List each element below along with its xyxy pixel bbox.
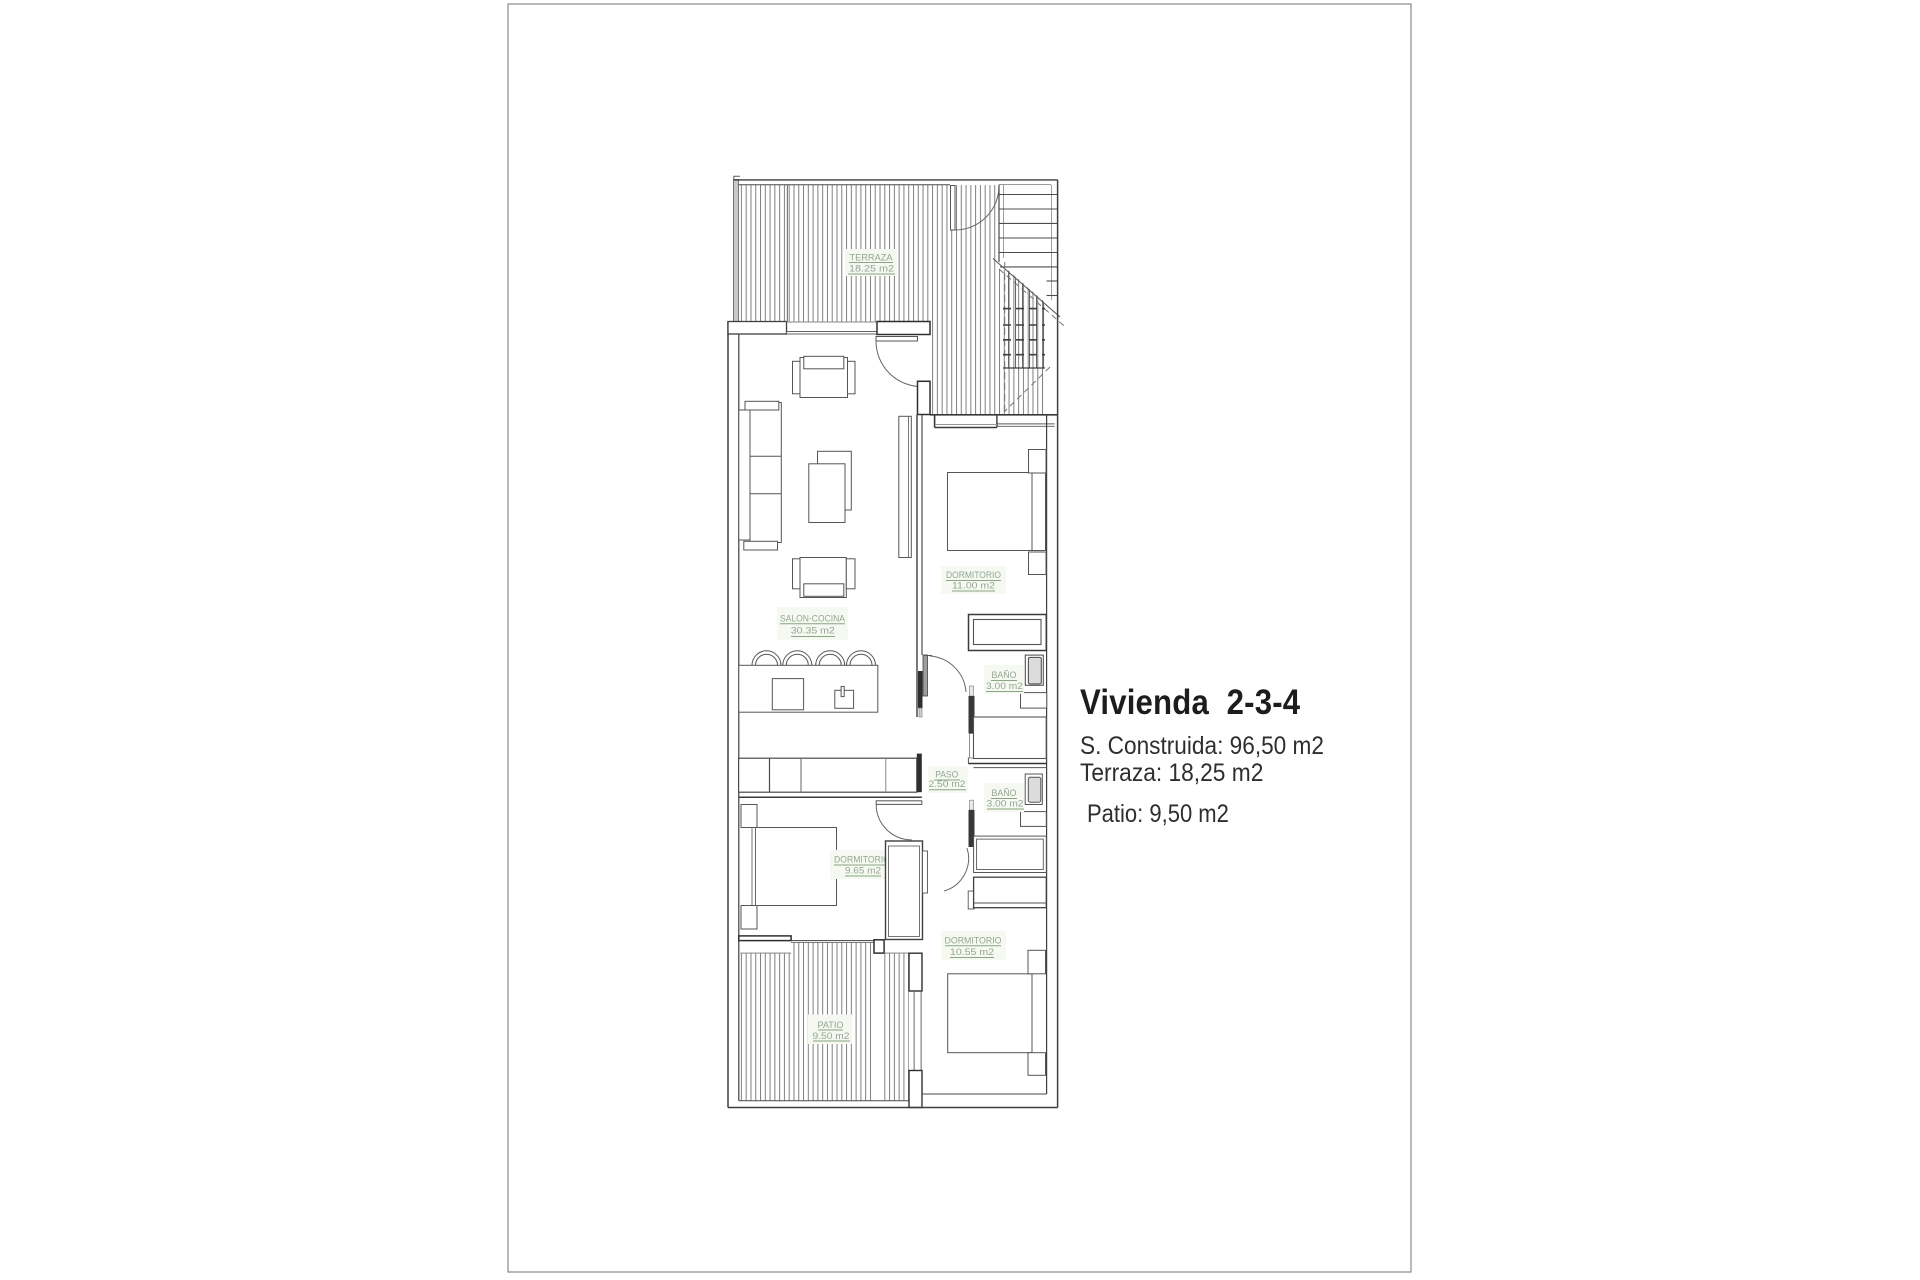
svg-text:10.55 m2: 10.55 m2 (950, 947, 994, 957)
svg-text:30.35 m2: 30.35 m2 (791, 626, 835, 636)
svg-text:9.65 m2: 9.65 m2 (845, 865, 881, 875)
svg-text:2.50 m2: 2.50 m2 (929, 779, 966, 789)
svg-text:9.50 m2: 9.50 m2 (813, 1031, 850, 1041)
svg-text:DORMITORIO: DORMITORIO (945, 935, 1002, 945)
svg-text:3.00 m2: 3.00 m2 (986, 681, 1023, 691)
svg-text:TERRAZA: TERRAZA (850, 253, 894, 263)
svg-text:11.00 m2: 11.00 m2 (952, 581, 995, 591)
svg-text:3.00 m2: 3.00 m2 (987, 799, 1024, 809)
svg-text:PATIO: PATIO (818, 1020, 844, 1030)
svg-text:DORMITORIO: DORMITORIO (946, 570, 1001, 580)
svg-text:PASO: PASO (935, 770, 958, 780)
svg-text:BAÑO: BAÑO (992, 788, 1017, 798)
svg-text:SALON-COCINA: SALON-COCINA (780, 613, 846, 623)
svg-text:18.25 m2: 18.25 m2 (849, 264, 894, 274)
svg-text:DORMITORIO: DORMITORIO (834, 855, 890, 865)
svg-text:BAÑO: BAÑO (992, 670, 1017, 680)
